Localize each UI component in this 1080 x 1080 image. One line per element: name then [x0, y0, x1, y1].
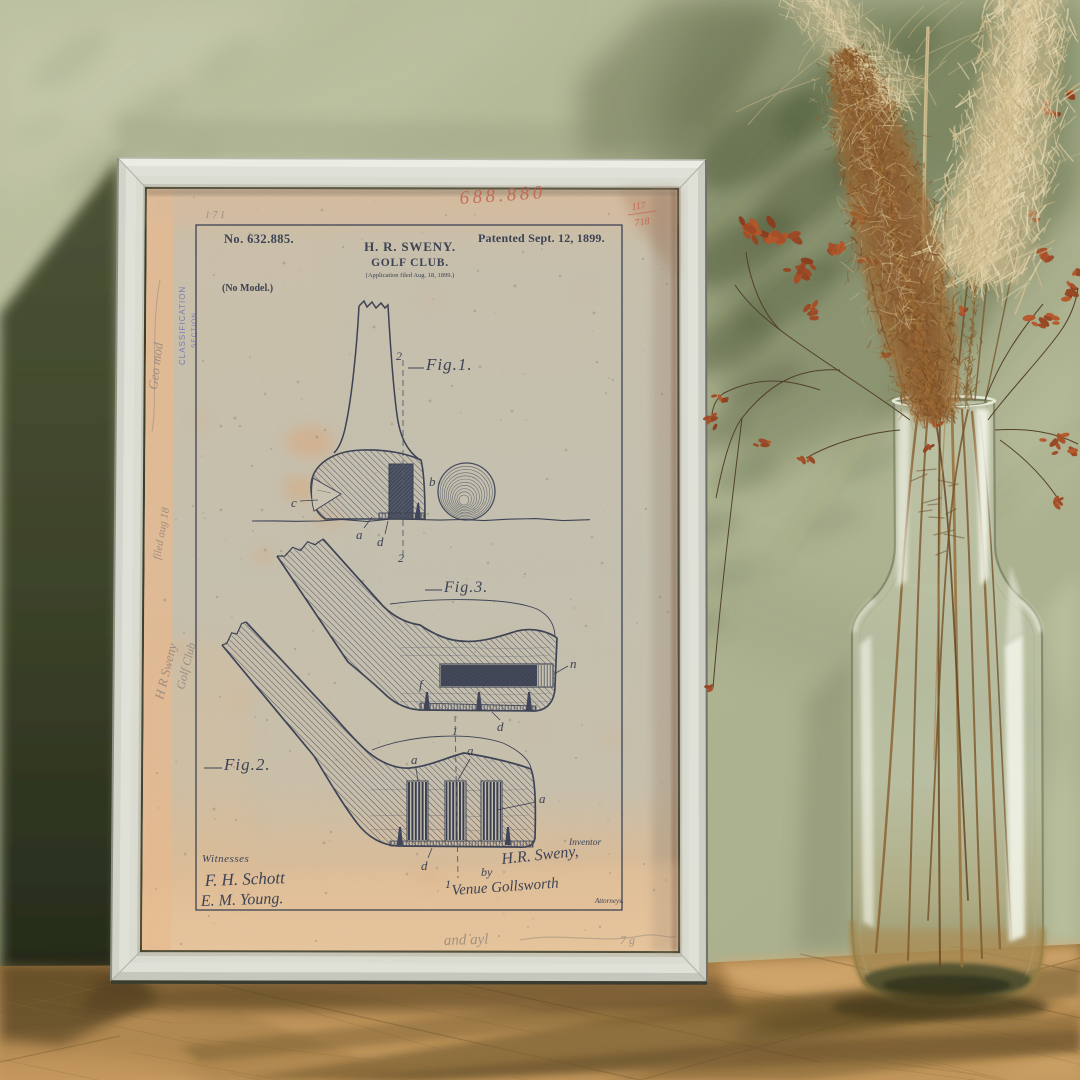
svg-text:b: b	[429, 474, 436, 489]
svg-text:Patented Sept. 12, 1899.: Patented Sept. 12, 1899.	[478, 231, 605, 245]
svg-text:No. 632.885.: No. 632.885.	[224, 232, 294, 246]
svg-text:CLASSIFICATION: CLASSIFICATION	[178, 286, 187, 365]
svg-text:c: c	[291, 495, 297, 510]
svg-text:Witnesses: Witnesses	[202, 853, 249, 865]
svg-text:H. R. SWENY.: H. R. SWENY.	[364, 239, 456, 254]
svg-text:Fig.1.: Fig.1.	[425, 355, 473, 374]
svg-text:d: d	[377, 534, 384, 549]
svg-text:a: a	[539, 791, 546, 806]
svg-text:and ayl: and ayl	[444, 931, 489, 949]
svg-text:n: n	[570, 656, 577, 671]
svg-text:(Application filed Aug. 18, 18: (Application filed Aug. 18, 1899.)	[366, 272, 455, 279]
svg-text:E. M. Young.: E. M. Young.	[200, 890, 284, 910]
svg-text:SECTION: SECTION	[191, 312, 198, 348]
svg-text:2: 2	[398, 551, 404, 565]
svg-text:Fig.3.: Fig.3.	[443, 579, 488, 596]
svg-text:(No Model.): (No Model.)	[222, 283, 273, 294]
svg-text:Fig.2.: Fig.2.	[223, 755, 271, 774]
svg-text:F. H. Schott: F. H. Schott	[203, 868, 286, 890]
svg-text:Attorneys.: Attorneys.	[594, 897, 624, 905]
svg-text:718: 718	[634, 216, 650, 229]
svg-text:GOLF CLUB.: GOLF CLUB.	[371, 257, 449, 269]
svg-text:d: d	[497, 719, 504, 734]
svg-text:1 7 1: 1 7 1	[205, 210, 225, 221]
svg-text:d: d	[421, 858, 428, 873]
svg-text:117: 117	[631, 200, 648, 213]
svg-text:a: a	[411, 752, 418, 767]
svg-text:a: a	[356, 527, 363, 542]
svg-text:a: a	[467, 743, 474, 758]
svg-text:by: by	[481, 865, 493, 879]
svg-text:1: 1	[445, 877, 451, 891]
svg-text:7 g: 7 g	[620, 933, 635, 947]
svg-text:2: 2	[396, 349, 402, 363]
